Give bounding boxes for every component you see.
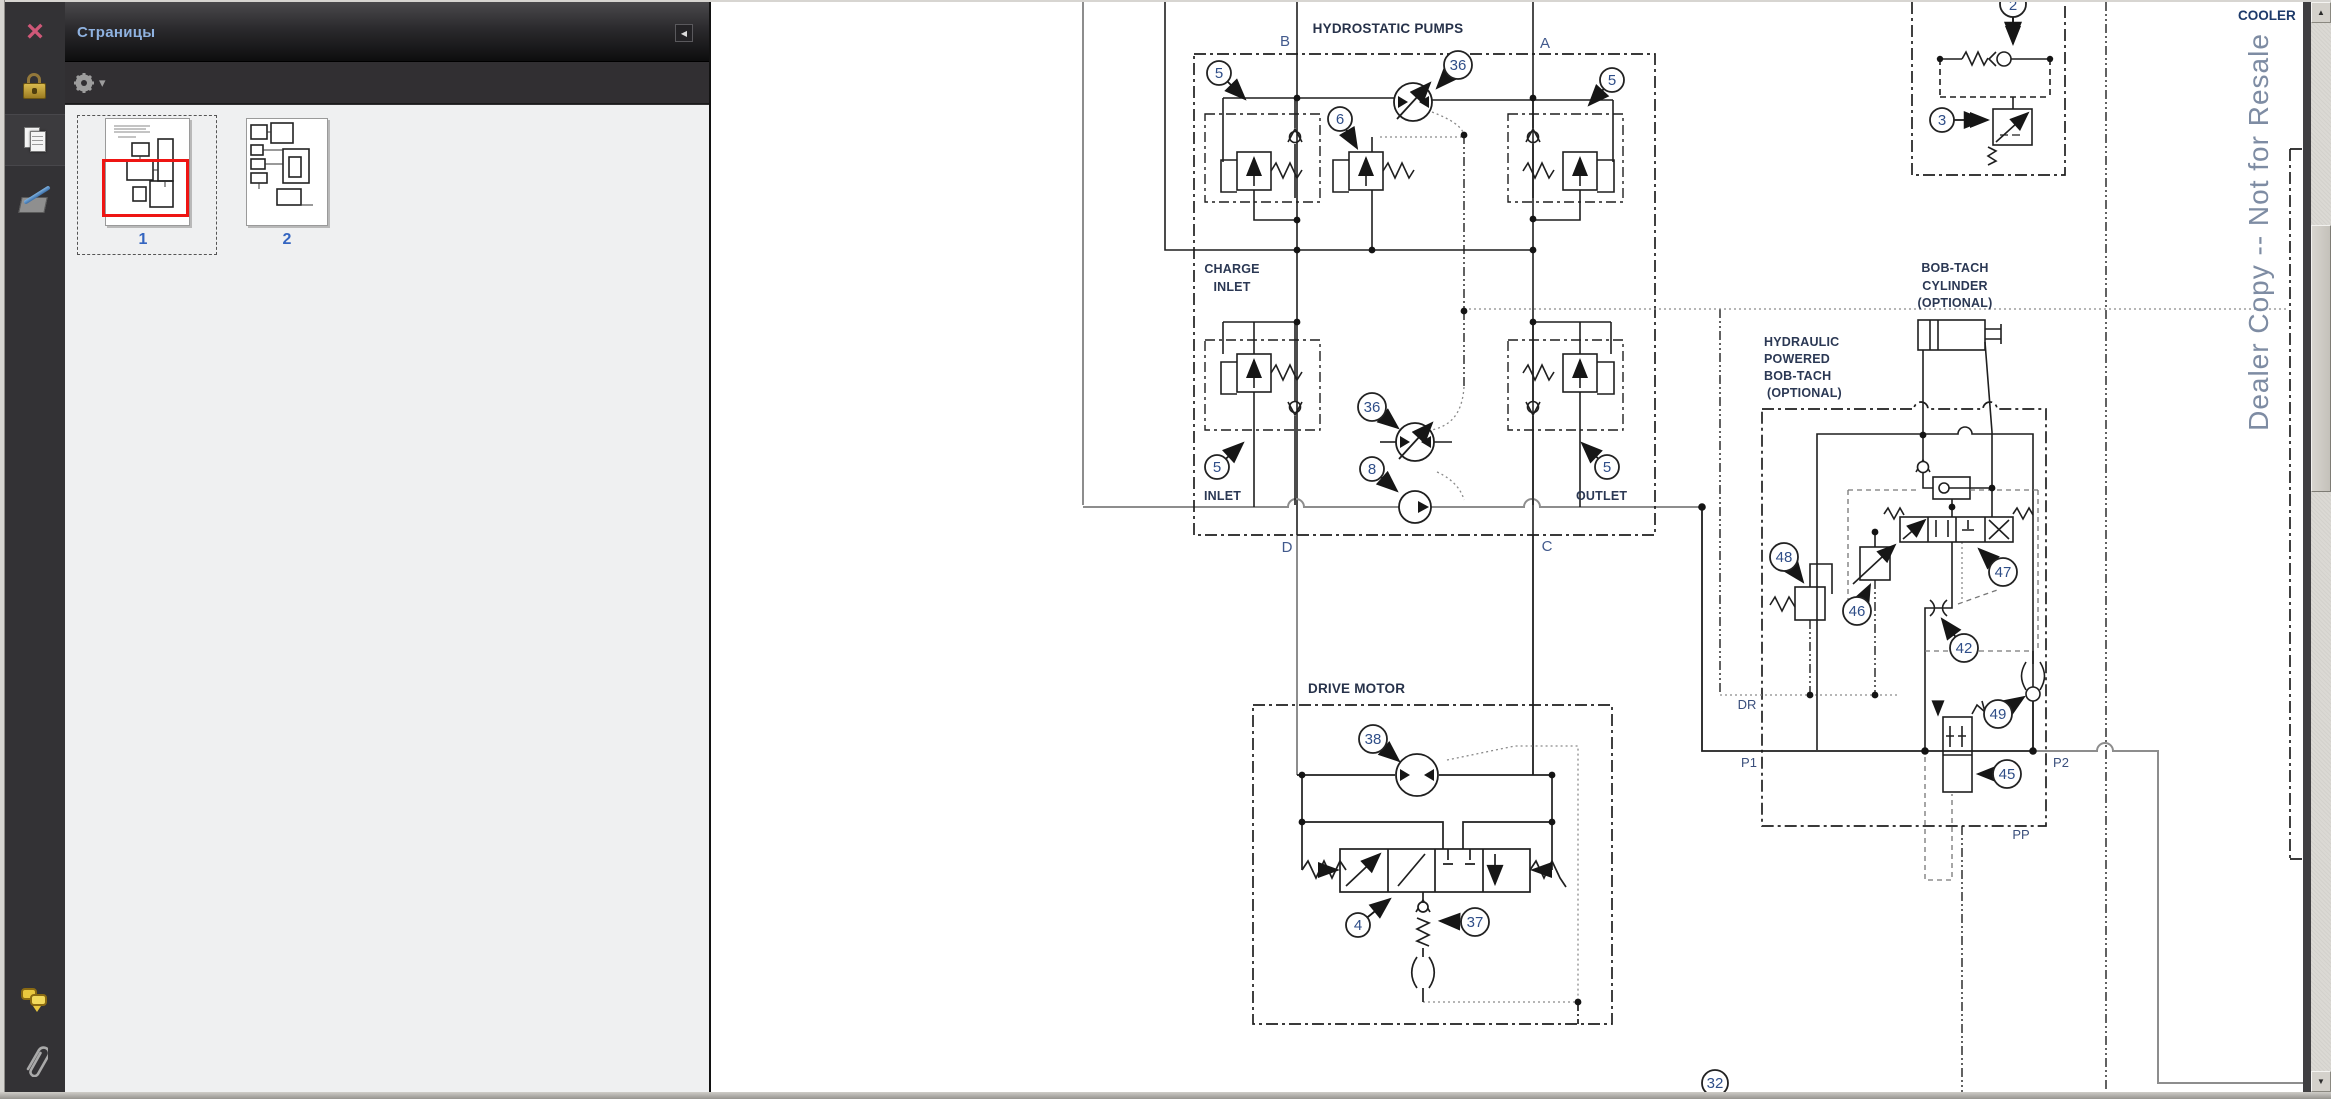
page-thumbnail-2[interactable] <box>246 118 328 226</box>
security-button[interactable] <box>5 60 65 112</box>
svg-text:36: 36 <box>1450 57 1467 74</box>
variable-pump-top <box>1394 83 1432 121</box>
dealer-copy-watermark: Dealer Copy -- Not for Resale <box>2243 33 2274 431</box>
port-c-label: C <box>1542 538 1553 555</box>
bobtach-cylinder-label-3: (OPTIONAL) <box>1918 296 1993 310</box>
charge-pump <box>1399 491 1431 523</box>
pages-panel-header: Страницы ◀ <box>65 2 709 62</box>
window-left-edge <box>0 0 5 1099</box>
hyd-bobtach-label-3: BOB-TACH <box>1764 369 1831 383</box>
balloon-36-mid: 36 <box>1358 393 1398 428</box>
scroll-down-icon: ▼ <box>2317 1077 2325 1086</box>
attachments-button[interactable] <box>5 1034 65 1086</box>
svg-text:4: 4 <box>1354 917 1362 934</box>
balloon-2: 2 <box>2000 2 2026 42</box>
document-page-view[interactable]: 5 36 5 6 36 8 5 5 38 4 37 2 3 48 46 47 4… <box>713 2 2303 1092</box>
cooler-circuit <box>1940 16 2050 165</box>
close-icon: × <box>26 17 44 47</box>
close-panel-button[interactable]: × <box>5 6 65 58</box>
lock-icon <box>23 73 47 99</box>
collapse-panel-button[interactable]: ◀ <box>675 24 693 42</box>
page-2-preview <box>247 119 327 225</box>
hydrostatic-pumps-section <box>1205 83 1623 523</box>
svg-text:46: 46 <box>1849 603 1866 620</box>
page-thumbnail-1[interactable] <box>105 118 190 226</box>
scroll-down-button[interactable]: ▼ <box>2311 1071 2331 1092</box>
svg-text:42: 42 <box>1956 640 1973 657</box>
page-1-number[interactable]: 1 <box>123 231 163 249</box>
junction-dots <box>1294 56 2054 1006</box>
svg-text:5: 5 <box>1215 65 1223 82</box>
balloon-8: 8 <box>1360 457 1397 491</box>
svg-text:6: 6 <box>1336 111 1344 128</box>
balloon-37: 37 <box>1440 908 1489 936</box>
pdf-viewer-window: × Страницы ◀ <box>0 0 2331 1099</box>
scroll-up-icon: ▲ <box>2317 8 2325 17</box>
hyd-bobtach-label-4: (OPTIONAL) <box>1767 386 1842 400</box>
balloon-49: 49 <box>1984 697 2024 728</box>
balloon-4: 4 <box>1346 899 1390 937</box>
page-edge-strip <box>2303 2 2311 1092</box>
drive-motor-section <box>1297 754 1578 1024</box>
bobtach-cylinder-label-1: BOB-TACH <box>1921 261 1988 275</box>
svg-text:2: 2 <box>2009 2 2017 14</box>
boundary-boxes <box>1194 2 2302 1024</box>
balloon-5-outlet: 5 <box>1582 443 1619 479</box>
balloon-3: 3 <box>1930 108 1984 132</box>
bobtach-cylinder-label-2: CYLINDER <box>1922 279 1988 293</box>
port-d-label: D <box>1282 539 1293 556</box>
panel-title: Страницы <box>77 24 155 41</box>
svg-text:47: 47 <box>1995 564 2012 581</box>
svg-text:8: 8 <box>1368 461 1376 478</box>
bobtach-section <box>1770 320 2045 880</box>
svg-text:36: 36 <box>1364 399 1381 416</box>
paperclip-icon <box>22 1043 48 1077</box>
svg-text:48: 48 <box>1776 549 1793 566</box>
svg-text:5: 5 <box>1608 72 1616 89</box>
diagram-labels: HYDROSTATIC PUMPS B A CHARGE INLET INLET… <box>1204 8 2296 842</box>
balloon-48: 48 <box>1770 543 1803 582</box>
inlet-label: INLET <box>1204 489 1241 503</box>
pages-icon <box>22 127 48 153</box>
comments-button[interactable] <box>5 974 65 1026</box>
port-p2-label: P2 <box>2053 755 2069 770</box>
charge-inlet-label-1: CHARGE <box>1204 262 1259 276</box>
balloon-5-inlet: 5 <box>1205 443 1243 479</box>
window-bottom-edge <box>0 1092 2331 1099</box>
panel-toolbar: ▾ <box>65 62 709 104</box>
balloon-45: 45 <box>1978 760 2021 788</box>
page-view-indicator[interactable] <box>102 159 189 217</box>
charge-inlet-label-2: INLET <box>1213 280 1250 294</box>
port-pp-label: PP <box>2012 827 2029 842</box>
balloon-36-top: 36 <box>1437 51 1472 88</box>
pages-panel-button[interactable] <box>5 114 65 166</box>
svg-text:3: 3 <box>1938 112 1946 129</box>
scrollbar-thumb[interactable] <box>2311 225 2331 492</box>
drive-motor-symbol <box>1396 754 1438 796</box>
balloon-46: 46 <box>1843 585 1871 625</box>
drive-motor-label: DRIVE MOTOR <box>1308 681 1405 696</box>
pilot-dotted-lines <box>1380 112 2288 1002</box>
balloon-5-top-left: 5 <box>1207 61 1245 99</box>
svg-text:5: 5 <box>1603 459 1611 476</box>
chevron-down-icon: ▾ <box>99 75 106 91</box>
svg-text:37: 37 <box>1467 914 1484 931</box>
panel-options-button[interactable]: ▾ <box>73 69 117 97</box>
hyd-bobtach-label-2: POWERED <box>1764 352 1830 366</box>
signatures-button[interactable] <box>5 178 65 230</box>
comments-icon <box>21 988 49 1012</box>
hyd-bobtach-label-1: HYDRAULIC <box>1764 335 1839 349</box>
cooler-label: COOLER <box>2238 8 2296 23</box>
gray-lines <box>1083 2 2303 1083</box>
scroll-up-button[interactable]: ▲ <box>2311 2 2331 23</box>
hydraulic-schematic: 5 36 5 6 36 8 5 5 38 4 37 2 3 48 46 47 4… <box>713 2 2303 1094</box>
port-p1-label: P1 <box>1741 755 1757 770</box>
balloon-6: 6 <box>1328 107 1357 148</box>
svg-text:38: 38 <box>1365 731 1382 748</box>
item-balloons: 5 36 5 6 36 8 5 5 38 4 37 2 3 48 46 47 4… <box>1205 2 2026 1094</box>
window-top-edge <box>0 0 2331 2</box>
port-a-label: A <box>1540 35 1550 52</box>
thumbnails-area[interactable]: 1 2 <box>65 105 709 1092</box>
svg-text:32: 32 <box>1707 1075 1724 1092</box>
svg-text:49: 49 <box>1990 706 2007 723</box>
variable-pump-bottom <box>1396 423 1434 461</box>
outlet-label: OUTLET <box>1576 489 1627 503</box>
port-b-label: B <box>1280 33 1290 50</box>
navigation-icon-strip: × <box>5 2 65 1092</box>
gear-icon <box>73 72 95 94</box>
collapse-arrow-icon: ◀ <box>681 29 687 38</box>
pages-panel: Страницы ◀ ▾ <box>65 2 711 1092</box>
signature-pen-icon <box>20 191 50 217</box>
svg-text:5: 5 <box>1213 459 1221 476</box>
balloon-32: 32 <box>1702 1070 1728 1094</box>
svg-text:45: 45 <box>1999 766 2016 783</box>
hydrostatic-pumps-label: HYDROSTATIC PUMPS <box>1313 21 1464 36</box>
vertical-scrollbar[interactable]: ▲ ▼ <box>2311 2 2331 1092</box>
page-2-number[interactable]: 2 <box>267 231 307 249</box>
port-dr-label: DR <box>1738 697 1757 712</box>
balloon-38: 38 <box>1359 725 1399 761</box>
balloon-47: 47 <box>1979 549 2017 586</box>
balloon-42: 42 <box>1942 619 1978 662</box>
